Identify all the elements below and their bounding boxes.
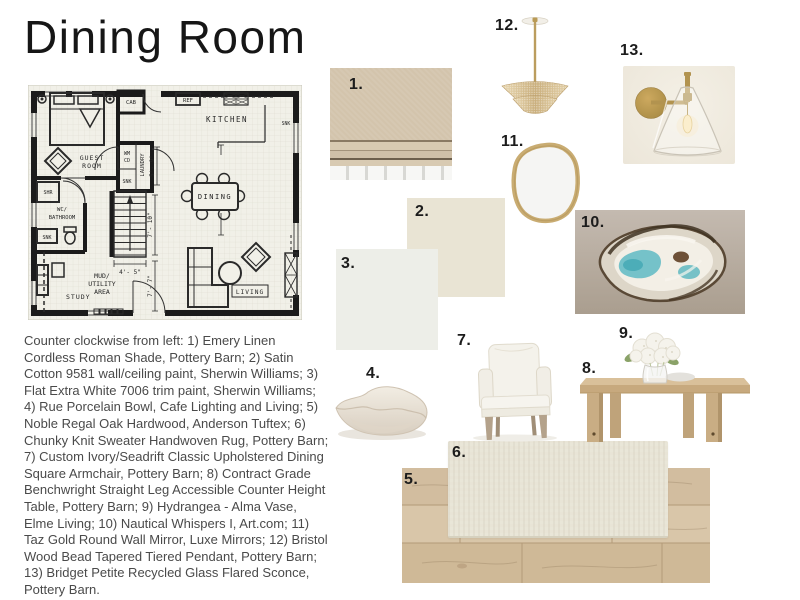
- label-study: STUDY: [66, 293, 91, 301]
- item-number-11: 11.: [501, 133, 524, 151]
- label-guest: GUEST: [80, 154, 105, 162]
- item-number-7: 7.: [457, 332, 471, 350]
- plan-grid: [29, 86, 301, 319]
- item-number-10: 10.: [581, 214, 605, 232]
- label-kitchen: KITCHEN: [206, 115, 248, 124]
- floor-plan: GUEST ROOM SHR SNK WC/ BATHROOM STUDY MU…: [28, 85, 302, 320]
- page-title: Dining Room: [24, 10, 306, 64]
- mood-board: Dining Room: [0, 0, 800, 600]
- label-living: LIVING: [236, 289, 264, 296]
- dim-stairs: 4'- 5": [119, 269, 141, 276]
- label-cd: CD: [124, 158, 130, 164]
- window-behind-shade: [330, 166, 452, 180]
- label-snk-kitchen: SNK: [282, 121, 291, 127]
- item-number-3: 3.: [341, 255, 355, 273]
- dim-hall: 7'- 10": [147, 212, 154, 237]
- label-cab: CAB: [126, 100, 137, 106]
- item-number-13: 13.: [620, 42, 644, 60]
- product-counter-height-table: [580, 376, 750, 444]
- label-bathroom: BATHROOM: [49, 215, 76, 221]
- label-wm: WM: [124, 151, 130, 157]
- label-dining: DINING: [198, 193, 232, 201]
- item-number-1: 1.: [349, 76, 363, 94]
- item-number-8: 8.: [582, 360, 596, 378]
- label-wc: WC/: [57, 207, 67, 213]
- label-utility: UTILITY: [88, 280, 115, 288]
- label-mud: MUD/: [94, 272, 110, 280]
- dim-lower: 7'- 7": [147, 275, 154, 297]
- label-snk-bath: SNK: [42, 235, 51, 241]
- sconce-bulb: [683, 115, 692, 133]
- label-shr: SHR: [43, 190, 53, 196]
- item-number-12: 12.: [495, 17, 519, 35]
- item-legend-text: Counter clockwise from left: 1) Emery Li…: [24, 333, 330, 599]
- item-number-5: 5.: [404, 471, 418, 489]
- label-snk-laundry: SNK: [122, 179, 131, 185]
- label-area: AREA: [94, 288, 110, 296]
- product-glass-sconce: [623, 66, 735, 164]
- item-number-2: 2.: [415, 203, 429, 221]
- product-dining-armchair: [468, 338, 563, 442]
- item-number-6: 6.: [452, 444, 466, 462]
- shade-fold: [330, 150, 452, 158]
- item-number-9: 9.: [619, 325, 633, 343]
- shade-fold: [330, 140, 452, 150]
- product-gold-round-mirror: [506, 140, 590, 230]
- product-porcelain-bowl: [330, 378, 436, 442]
- dim-upper: 5'- 9": [149, 155, 156, 177]
- label-laundry: LAUNDRY: [140, 153, 146, 177]
- label-ref: REF: [183, 98, 193, 104]
- product-knit-rug: [448, 441, 668, 538]
- item-number-4: 4.: [366, 365, 380, 383]
- label-room: ROOM: [82, 162, 102, 170]
